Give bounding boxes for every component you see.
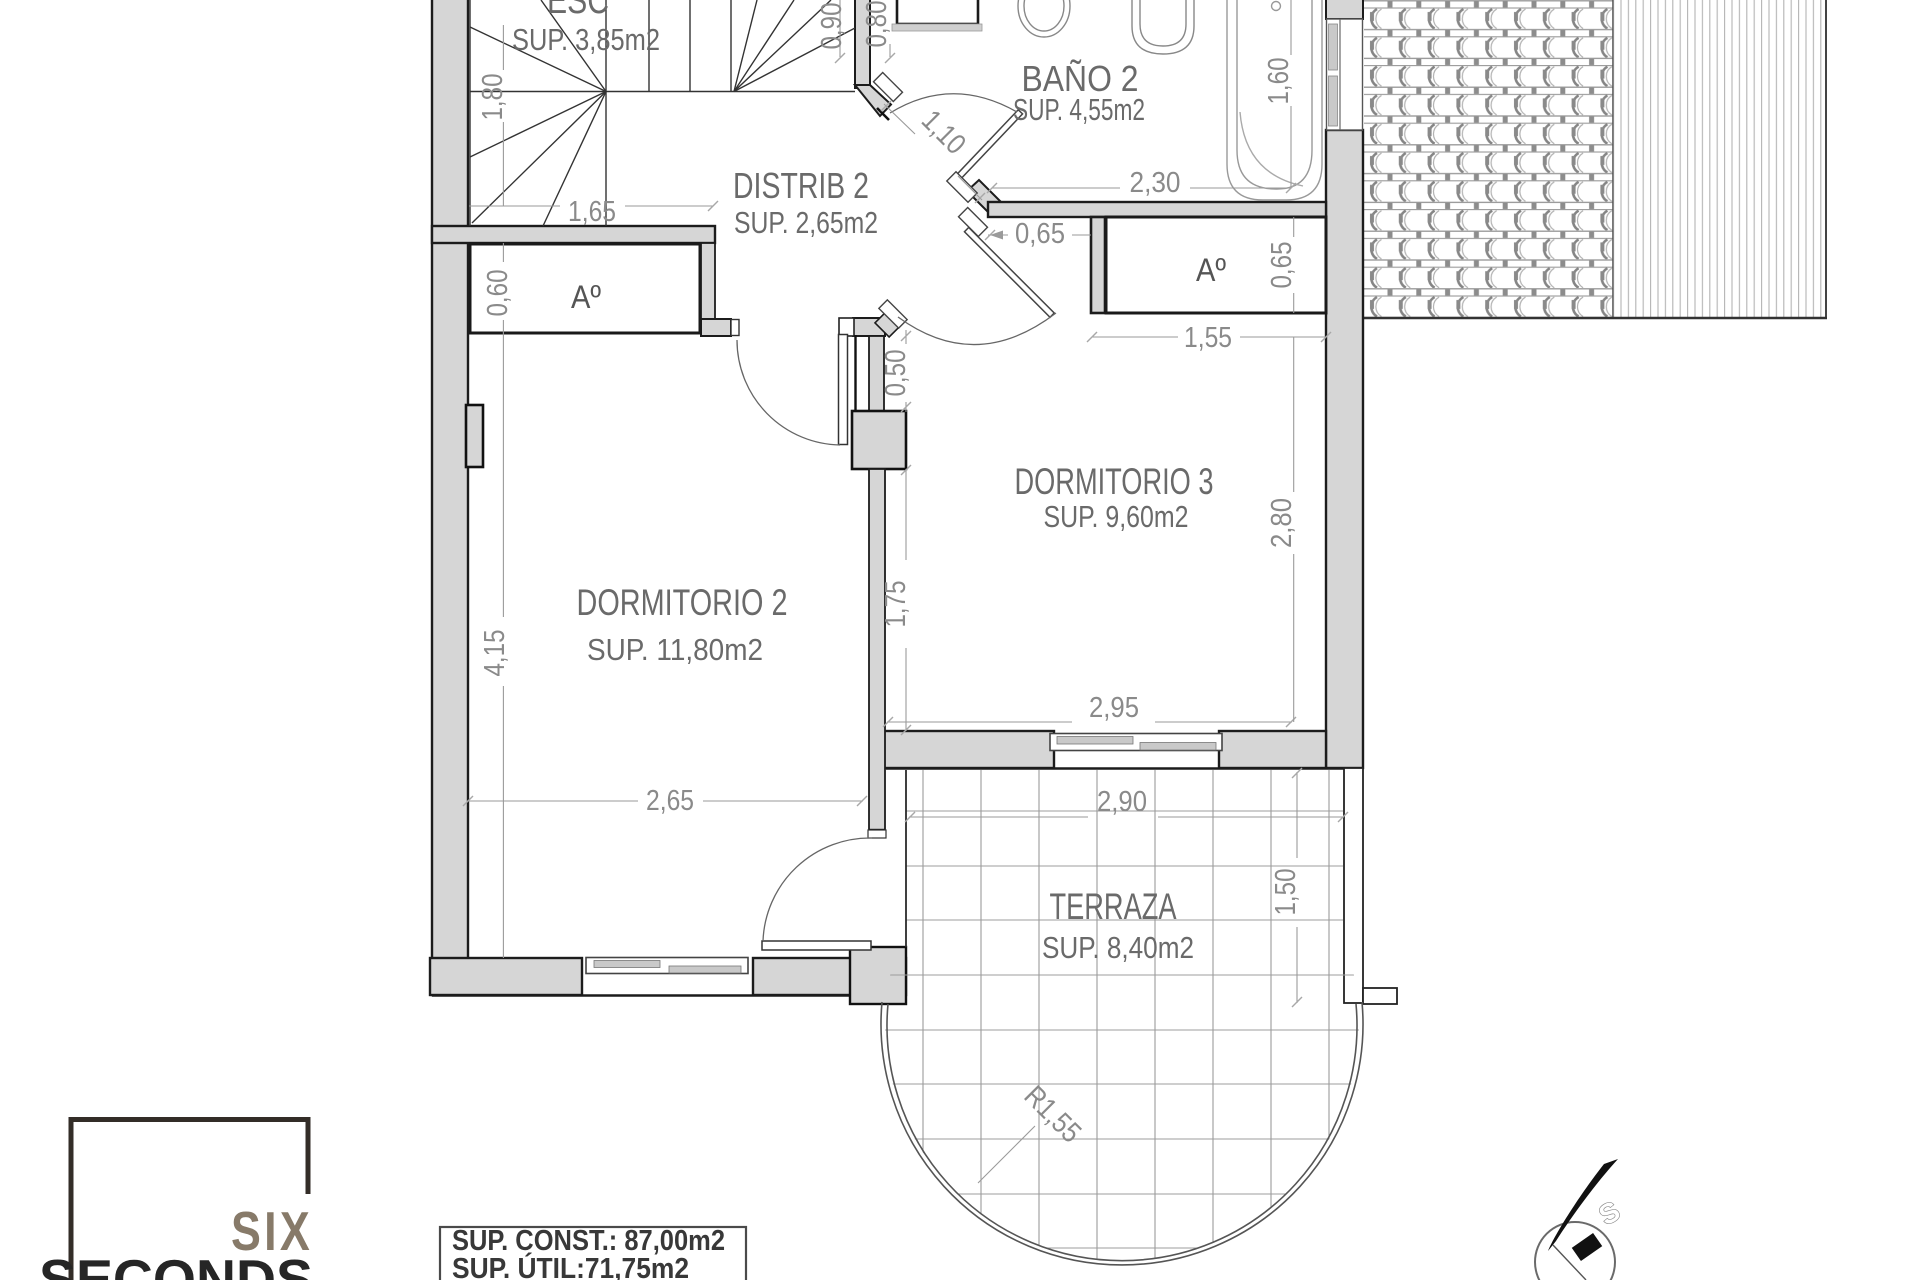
svg-text:ESC: ESC bbox=[547, 0, 609, 22]
svg-text:0,65: 0,65 bbox=[1015, 218, 1065, 250]
svg-text:0,80: 0,80 bbox=[861, 1, 893, 48]
svg-text:SECONDS: SECONDS bbox=[39, 1248, 313, 1280]
svg-text:1,55: 1,55 bbox=[1184, 322, 1232, 354]
svg-text:SUP. ÚTIL:71,75m2: SUP. ÚTIL:71,75m2 bbox=[452, 1251, 689, 1280]
svg-text:0,50: 0,50 bbox=[880, 350, 912, 397]
svg-text:SUP. 8,40m2: SUP. 8,40m2 bbox=[1042, 930, 1194, 965]
svg-text:SUP. 11,80m2: SUP. 11,80m2 bbox=[587, 632, 763, 667]
svg-text:2,65: 2,65 bbox=[646, 785, 694, 817]
svg-text:2,90: 2,90 bbox=[1097, 786, 1147, 818]
svg-text:2,30: 2,30 bbox=[1130, 167, 1181, 199]
svg-text:TERRAZA: TERRAZA bbox=[1050, 886, 1177, 927]
svg-text:1,60: 1,60 bbox=[1263, 58, 1295, 105]
svg-text:2,95: 2,95 bbox=[1089, 692, 1139, 724]
svg-text:2,80: 2,80 bbox=[1266, 498, 1298, 548]
svg-text:0,65: 0,65 bbox=[1266, 242, 1298, 289]
svg-text:DISTRIB 2: DISTRIB 2 bbox=[733, 165, 869, 206]
svg-text:1,50: 1,50 bbox=[1270, 869, 1302, 916]
svg-text:0,90: 0,90 bbox=[816, 3, 848, 50]
svg-text:SUP. 3,85m2: SUP. 3,85m2 bbox=[512, 22, 660, 57]
svg-text:SUP. 4,55m2: SUP. 4,55m2 bbox=[1013, 92, 1145, 127]
svg-text:4,15: 4,15 bbox=[479, 630, 511, 677]
svg-text:DORMITORIO 3: DORMITORIO 3 bbox=[1015, 461, 1214, 502]
svg-text:Aº: Aº bbox=[571, 279, 601, 315]
svg-text:0,60: 0,60 bbox=[482, 270, 514, 317]
svg-text:1,75: 1,75 bbox=[880, 581, 912, 628]
svg-text:1,65: 1,65 bbox=[568, 196, 616, 228]
svg-text:Aº: Aº bbox=[1196, 252, 1226, 288]
svg-text:SUP. 2,65m2: SUP. 2,65m2 bbox=[734, 205, 878, 240]
svg-text:SUP. 9,60m2: SUP. 9,60m2 bbox=[1044, 499, 1189, 534]
svg-text:1,80: 1,80 bbox=[477, 74, 509, 121]
svg-text:DORMITORIO 2: DORMITORIO 2 bbox=[577, 582, 788, 623]
